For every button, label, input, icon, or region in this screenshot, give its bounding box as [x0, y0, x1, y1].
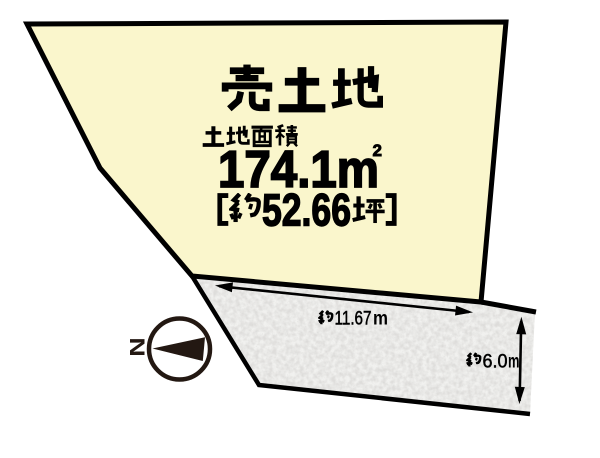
svg-text:m: m	[373, 309, 388, 330]
svg-text:N: N	[125, 337, 149, 356]
svg-text:2: 2	[373, 141, 382, 160]
svg-text:11.67: 11.67	[335, 309, 372, 330]
svg-text:52.66: 52.66	[262, 185, 351, 236]
svg-text:6.0: 6.0	[483, 352, 508, 373]
svg-text:m: m	[508, 352, 520, 373]
